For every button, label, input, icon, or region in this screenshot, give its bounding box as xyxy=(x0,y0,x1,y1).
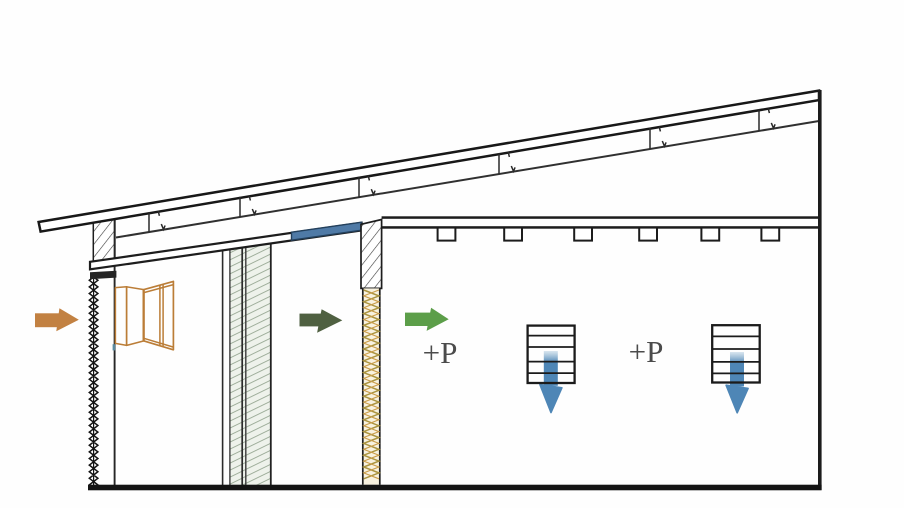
svg-text:+P: +P xyxy=(423,335,458,370)
svg-text:+P: +P xyxy=(629,334,664,369)
